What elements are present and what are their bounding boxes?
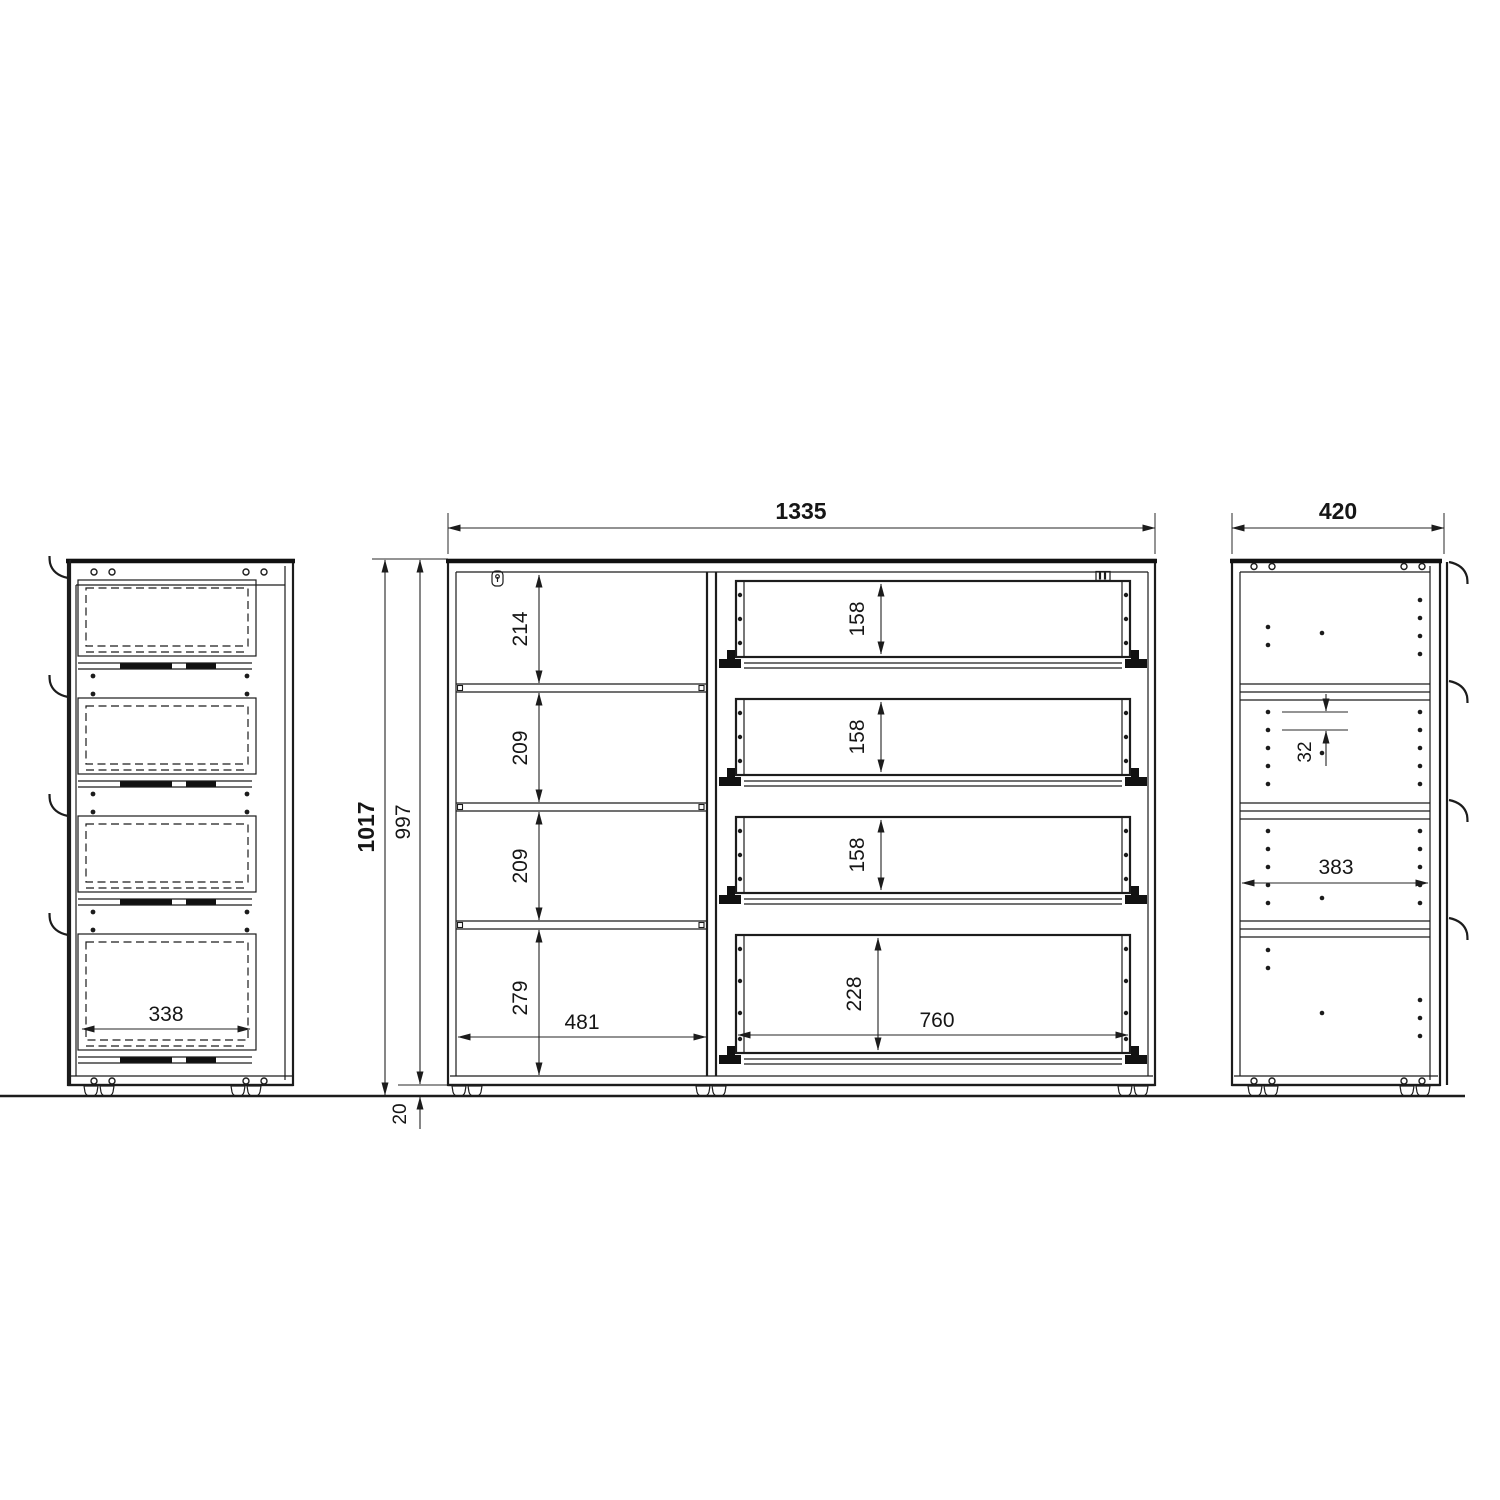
- drawer-4: 228 760: [719, 935, 1147, 1064]
- dim-label-481: 481: [564, 1011, 599, 1034]
- right-side-view: 420: [1230, 498, 1468, 1096]
- dim-compartment-4: 279: [509, 930, 539, 1075]
- dim-label-158b: 158: [846, 719, 869, 754]
- dim-label-1017: 1017: [353, 801, 379, 852]
- dim-label-209b: 209: [509, 848, 532, 883]
- dim-inner-depth-383: 383: [1242, 856, 1428, 883]
- dim-body-height-997: 997: [392, 560, 450, 1085]
- fitting-icon: [1096, 572, 1110, 581]
- feet-right-view: [1248, 1086, 1430, 1096]
- dim-label-997: 997: [392, 804, 415, 839]
- dim-label-32: 32: [1295, 741, 1316, 762]
- cam-lock-icon: [492, 571, 503, 586]
- shelf-2: [456, 803, 707, 811]
- shelf-1: [456, 684, 707, 692]
- feet-left-view: [84, 1086, 261, 1096]
- dim-label-760: 760: [919, 1009, 954, 1032]
- dim-label-158c: 158: [846, 837, 869, 872]
- left-side-view: 338: [50, 556, 296, 1096]
- dim-label-209a: 209: [509, 730, 532, 765]
- dim-left-inner-width-481: 481: [458, 1011, 706, 1037]
- dim-label-1335: 1335: [775, 498, 826, 524]
- dim-label-420: 420: [1319, 498, 1357, 524]
- drawer-1: 158: [719, 581, 1147, 668]
- drawer-front-hooks-left: [50, 556, 69, 935]
- dim-compartment-3: 209: [509, 812, 539, 920]
- side-drawer-row-2: [78, 698, 256, 787]
- side-drawer-row-4: [78, 934, 256, 1063]
- dim-label-158a: 158: [846, 601, 869, 636]
- dim-label-338: 338: [148, 1003, 183, 1026]
- front-view: 1335 1017 997 20: [353, 498, 1157, 1129]
- side-drawer-row-1: [78, 580, 256, 669]
- feet-front-view: [452, 1086, 1148, 1096]
- dim-compartment-2: 209: [509, 693, 539, 802]
- drawer-2: 158: [719, 699, 1147, 786]
- drawing-svg: 338 1335 1017 997 20: [0, 0, 1500, 1500]
- dim-label-279: 279: [509, 980, 532, 1015]
- dim-label-214: 214: [509, 611, 532, 646]
- dim-foot-height-20: 20: [390, 1097, 420, 1129]
- dim-depth-420: 420: [1232, 498, 1444, 554]
- dim-width-1335: 1335: [448, 498, 1155, 554]
- shelf-3: [456, 921, 707, 929]
- dim-hole-pitch-32: 32: [1282, 694, 1348, 766]
- dim-drawer-width-338: 338: [82, 1003, 250, 1029]
- dim-label-383: 383: [1318, 856, 1353, 879]
- dim-label-20: 20: [390, 1103, 411, 1124]
- technical-drawing-canvas: 338 1335 1017 997 20: [0, 0, 1500, 1500]
- dim-compartment-1: 214: [509, 575, 539, 683]
- pin-hole-columns: [1266, 598, 1423, 1039]
- drawer-front-hooks-right: [1449, 562, 1468, 940]
- side-shelf-lines: [1240, 684, 1430, 937]
- side-drawer-row-3: [78, 816, 256, 905]
- drawer-3: 158: [719, 817, 1147, 904]
- dim-label-228: 228: [843, 976, 866, 1011]
